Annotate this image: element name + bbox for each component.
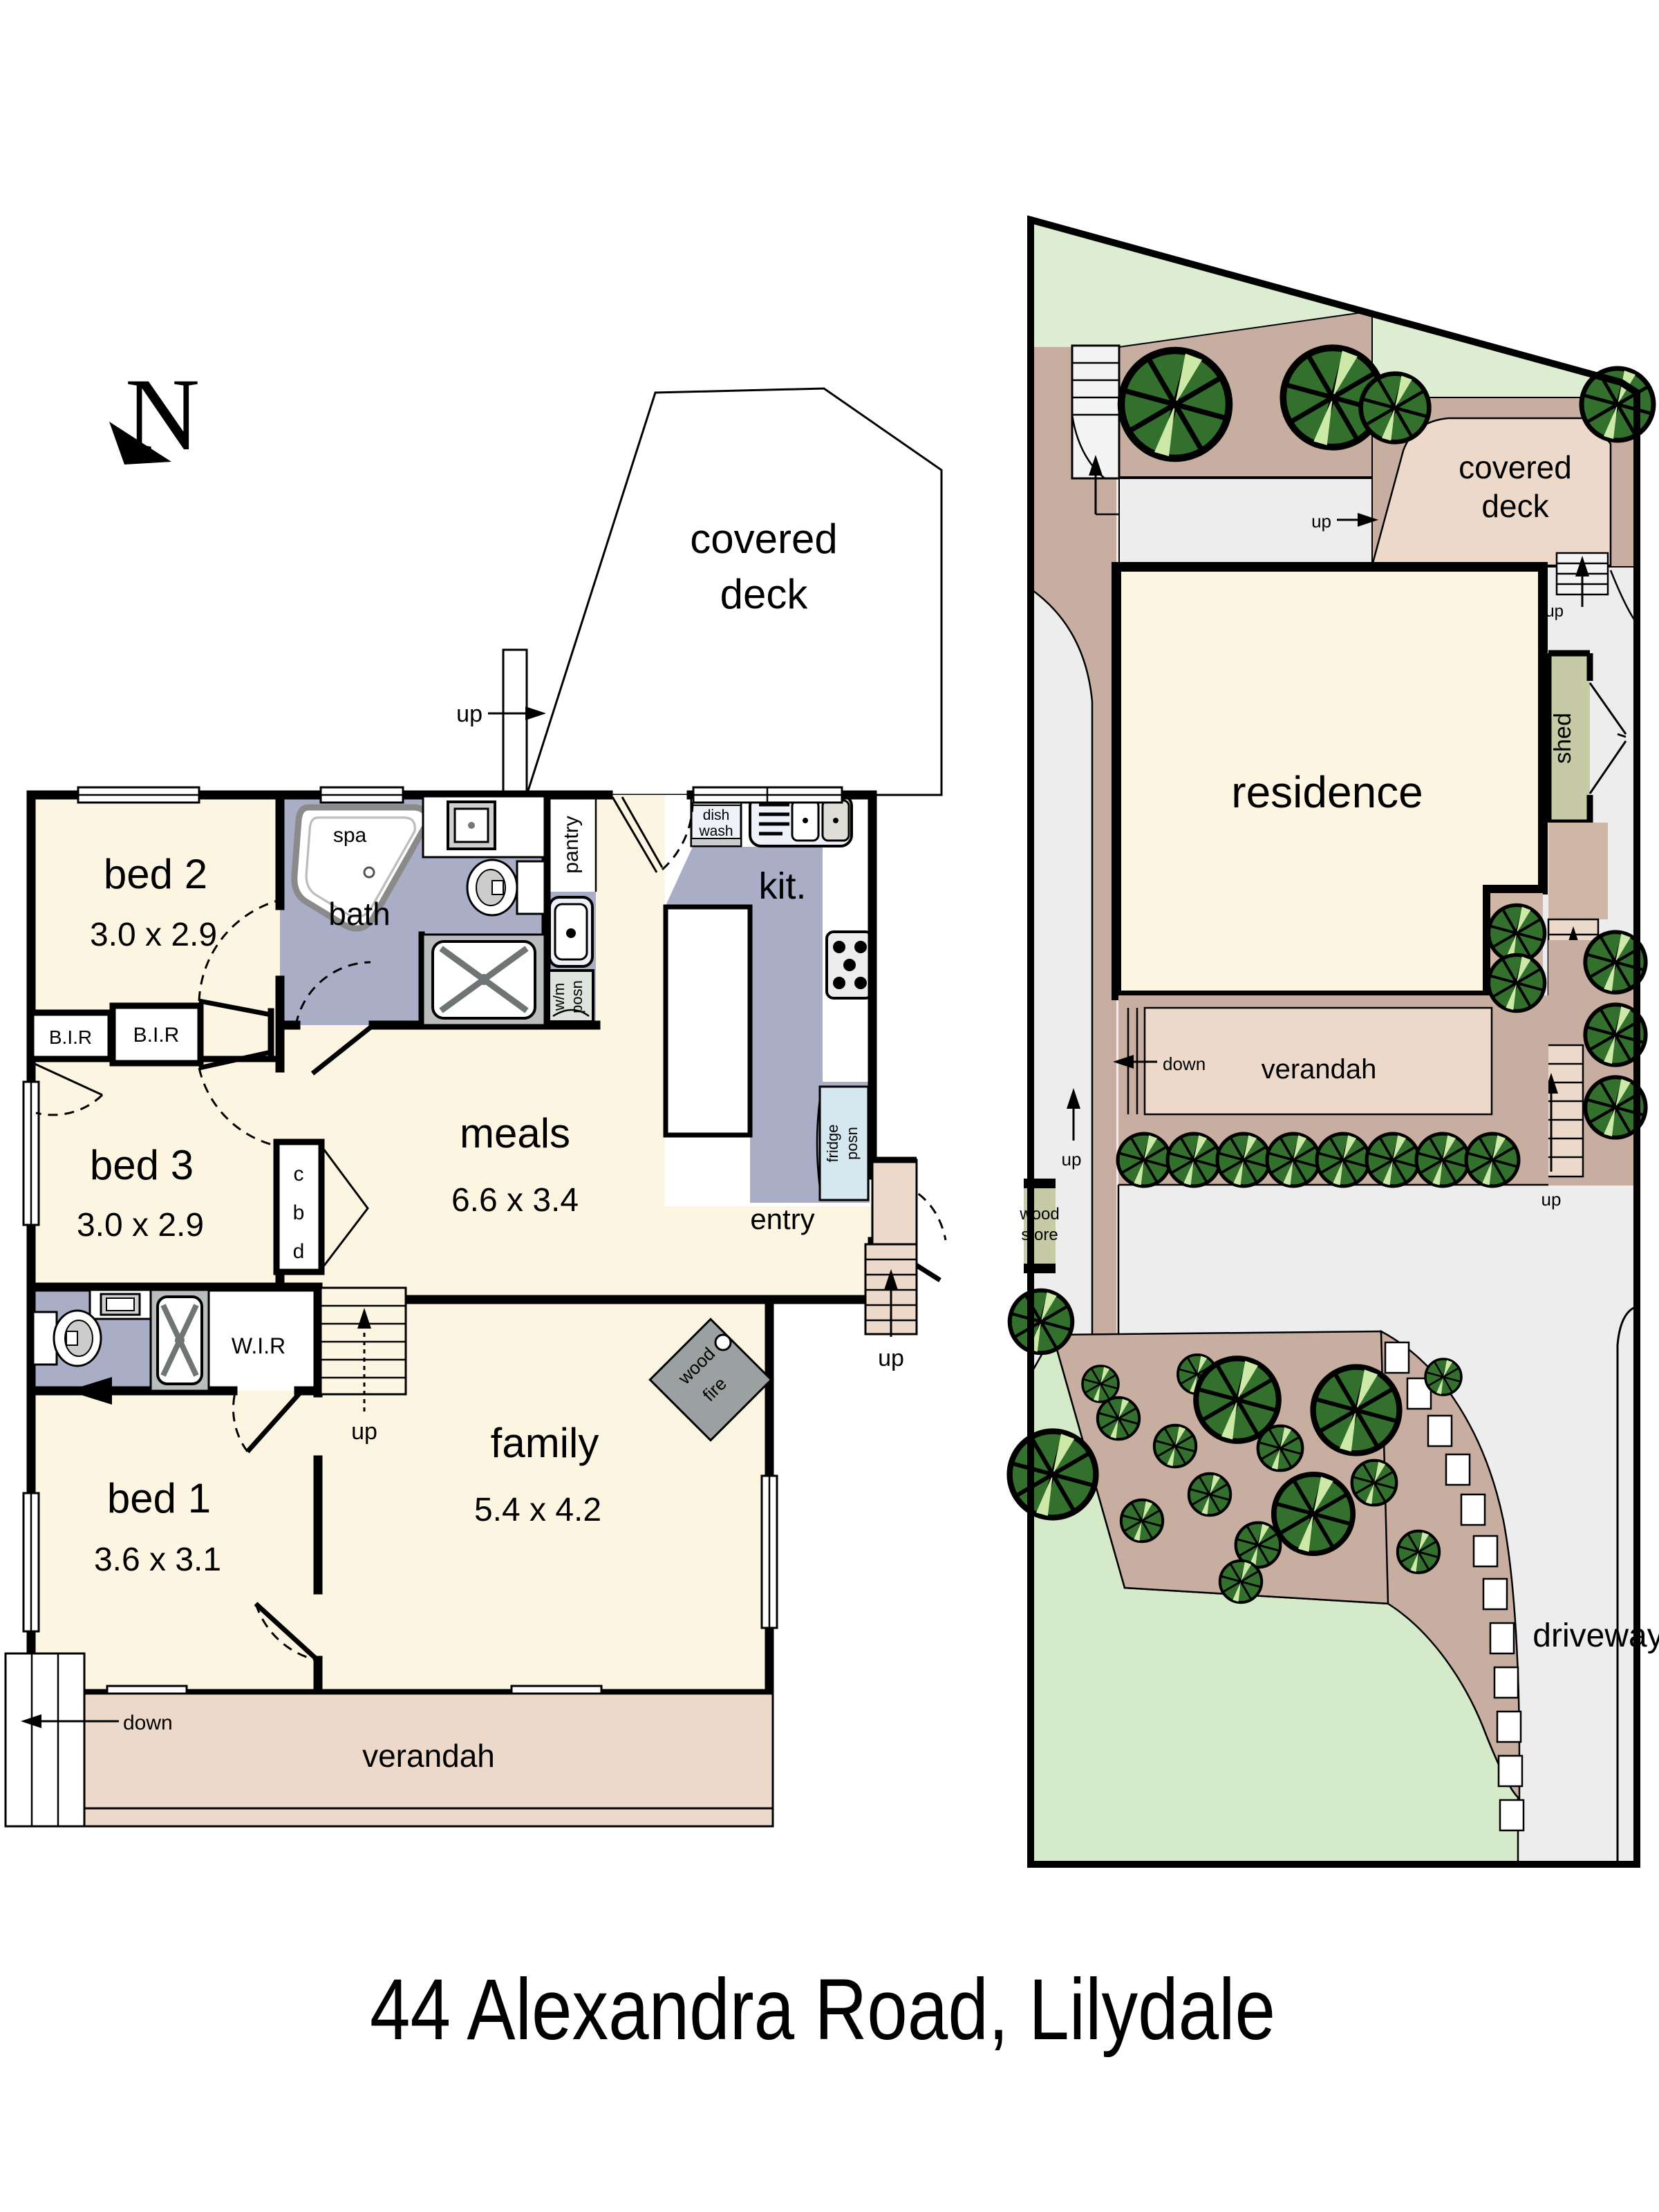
fp-verandah-label: verandah [362, 1738, 495, 1774]
window [762, 1476, 777, 1628]
site-deck-label2: deck [1481, 488, 1549, 524]
fp-covered-deck: covered deck up [456, 388, 941, 795]
window [78, 787, 199, 803]
ensuite-toilet-icon [33, 1311, 101, 1366]
fp-up-entry-label: up [878, 1345, 904, 1371]
fp-deck-label: covered [690, 516, 837, 562]
site-verandah: verandah down [1116, 995, 1548, 1135]
label-wir: W.I.R [232, 1333, 285, 1358]
dish-label: dish [703, 807, 730, 823]
shower-icon [423, 935, 545, 1025]
label-bed3: bed 3 [90, 1142, 194, 1188]
wood-store-label: wood [1019, 1205, 1059, 1224]
label-bed2-dims: 3.0 x 2.9 [90, 917, 217, 953]
floorplan-drawing: N covered deck up dish wash [0, 0, 1659, 2212]
label-bed1-dims: 3.6 x 3.1 [94, 1541, 221, 1578]
ensuite-shower-icon [151, 1290, 209, 1391]
bath-vanity-icon [423, 796, 545, 857]
fp-down-label: down [123, 1712, 173, 1734]
site-verandah-label: verandah [1262, 1054, 1377, 1085]
ensuite-vanity-icon [90, 1290, 151, 1319]
site-plan: up up covered deck up residence shed [1010, 220, 1659, 1864]
fridge-label: fridge [824, 1124, 841, 1162]
cbd-label-d: d [293, 1240, 305, 1263]
bir-right-label: B.I.R [133, 1024, 180, 1047]
site-residence-label: residence [1231, 767, 1423, 817]
label-bed3-dims: 3.0 x 2.9 [77, 1207, 204, 1244]
window [24, 1082, 39, 1225]
label-entry: entry [750, 1203, 814, 1235]
north-compass-icon: N [109, 357, 200, 472]
label-wm: w/m [550, 983, 568, 1011]
label-family: family [491, 1420, 599, 1466]
cbd-label-c: c [294, 1163, 304, 1185]
site-up-verandah-label: up [1062, 1149, 1082, 1170]
dish-label2: wash [698, 823, 733, 839]
site-up-deck-label: up [1545, 602, 1564, 621]
verandah-steps [6, 1653, 84, 1826]
label-bed2: bed 2 [104, 851, 207, 897]
site-deck-label: covered [1459, 449, 1572, 485]
laundry-trough-icon [550, 897, 592, 966]
wood-store-label2: store [1021, 1226, 1058, 1244]
kit-label: kit. [758, 865, 806, 907]
label-meals: meals [460, 1110, 570, 1156]
label-bath: bath [328, 896, 391, 932]
window [321, 787, 403, 803]
island-bench [666, 907, 750, 1135]
label-family-dims: 5.4 x 4.2 [474, 1492, 601, 1528]
site-up-path-label: up [1311, 511, 1331, 532]
site-down-label: down [1163, 1053, 1206, 1074]
spa-label: spa [333, 824, 367, 847]
window [24, 1493, 39, 1631]
wood-store: wood store [1019, 1179, 1059, 1273]
fp-deck-up-label: up [456, 701, 482, 727]
fridge-position: fridge posn [817, 1087, 868, 1200]
page-title: 44 Alexandra Road, Lilydale [370, 1962, 1275, 2058]
dishwasher-icon: dish wash [691, 798, 741, 846]
window [693, 787, 842, 803]
fp-up-internal-label: up [351, 1418, 377, 1445]
label-bed1: bed 1 [107, 1475, 211, 1521]
bir-left-label: B.I.R [49, 1027, 92, 1048]
label-pantry: pantry [560, 816, 583, 873]
site-shed-label: shed [1550, 713, 1576, 764]
site-up-right-label: up [1541, 1189, 1562, 1210]
fp-entry-stairs: up [865, 1160, 917, 1371]
toilet-icon [467, 860, 545, 915]
label-meals-dims: 6.6 x 3.4 [451, 1182, 579, 1219]
label-wm2: posn [568, 980, 585, 1013]
floorplan-page: N covered deck up dish wash [0, 0, 1659, 2212]
cbd-label-b: b [293, 1201, 305, 1224]
fridge-label2: posn [843, 1127, 861, 1160]
cooktop-icon [827, 932, 872, 998]
fp-deck-label2: deck [720, 571, 809, 617]
